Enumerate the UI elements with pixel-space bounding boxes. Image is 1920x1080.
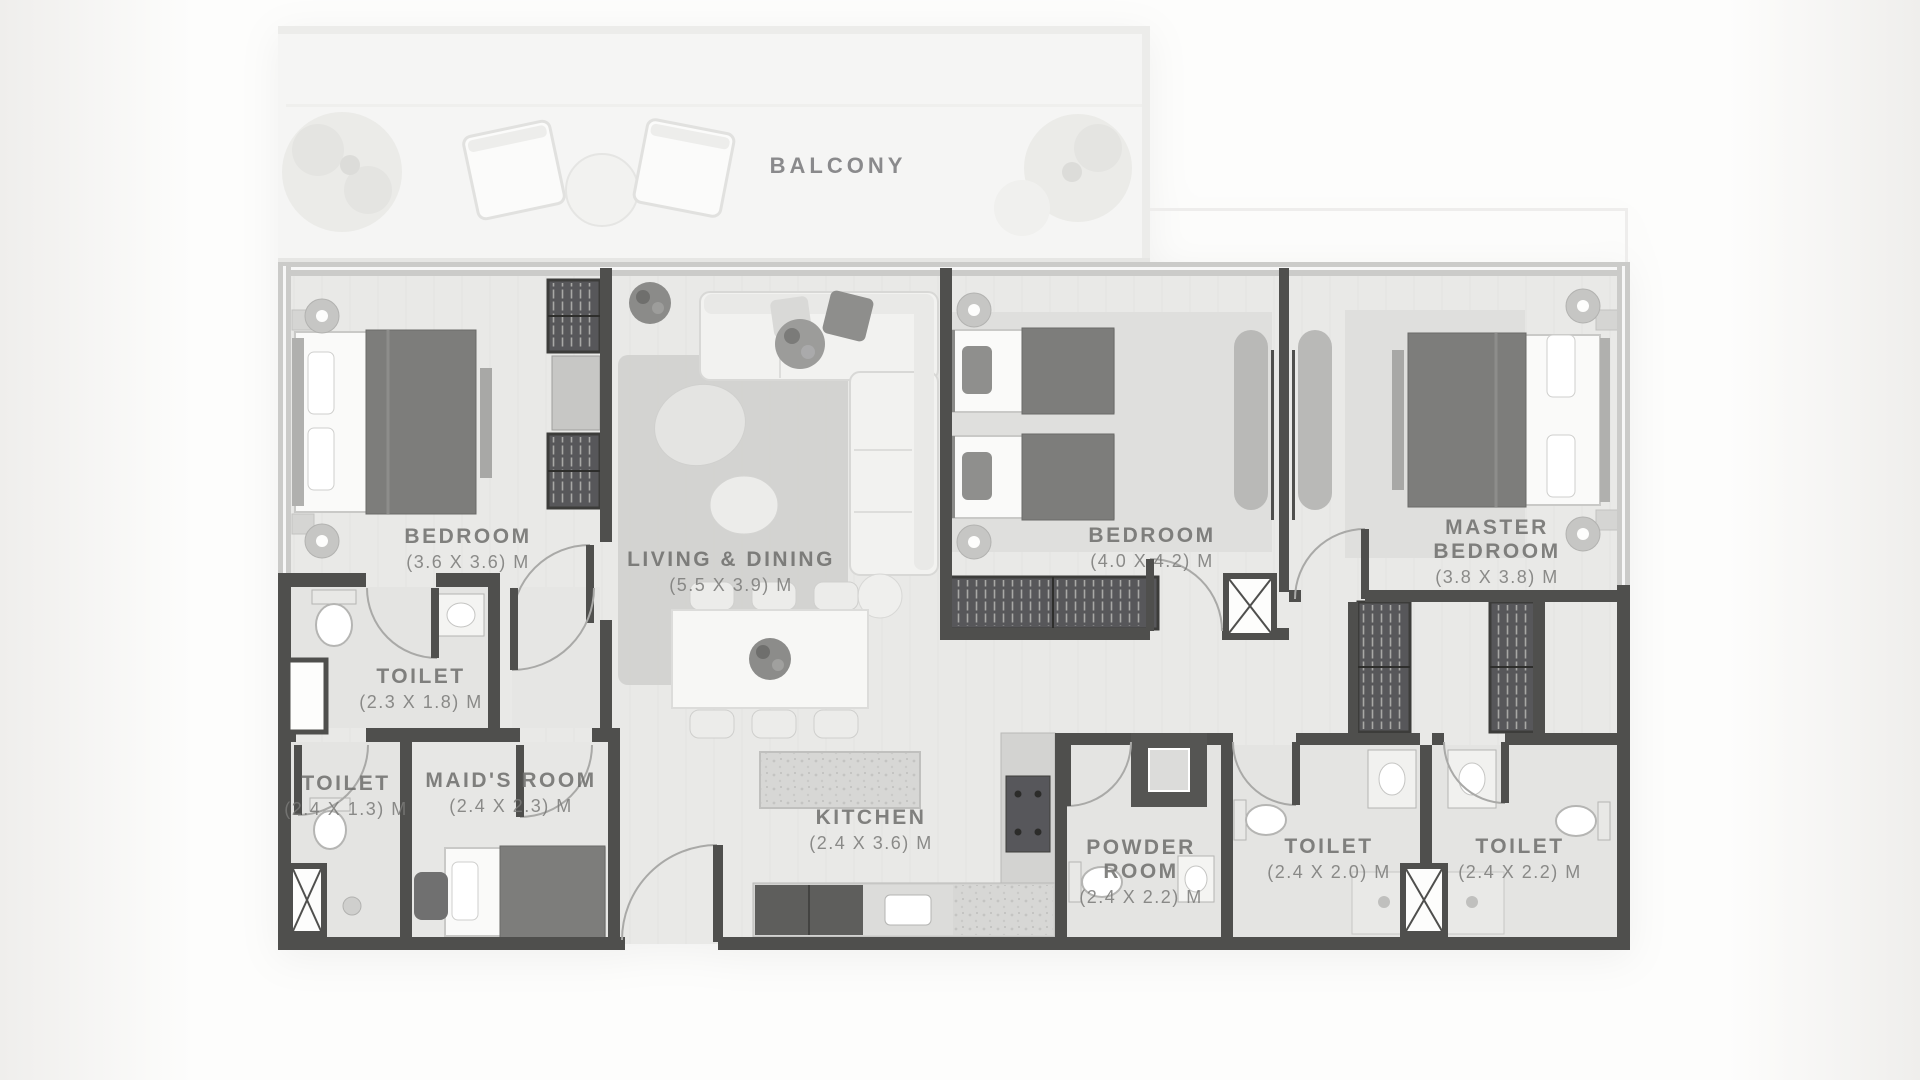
room-dims: (3.8 X 3.8) M	[1433, 567, 1560, 588]
wall-niche	[288, 660, 326, 732]
bed-bench	[1392, 350, 1404, 490]
kitchen-counter	[953, 885, 1053, 935]
terrace-line-right	[1625, 208, 1628, 264]
nightstand	[1596, 510, 1618, 530]
chair	[414, 872, 448, 920]
kitchen-sink	[885, 895, 931, 925]
wardrobe-long	[948, 577, 1158, 629]
washbasin	[1368, 750, 1416, 808]
ceiling-light-icon	[1566, 289, 1600, 323]
room-dims: (5.5 X 3.9) M	[627, 575, 835, 596]
pillow	[1547, 435, 1575, 497]
wardrobe	[1358, 602, 1410, 732]
dining-chair	[752, 710, 796, 738]
balcony-chair-2	[633, 118, 735, 217]
room-name: BALCONY	[770, 153, 907, 179]
room-label-maids-room: MAID'S ROOM (2.4 X 2.3) M	[425, 769, 596, 817]
plant-icon	[629, 282, 671, 324]
washbasin	[438, 594, 484, 636]
room-name: MASTER	[1433, 516, 1560, 540]
ceiling-light-icon	[1566, 517, 1600, 551]
room-dims: (3.6 X 3.6) M	[404, 552, 531, 573]
twin-bed	[947, 434, 1114, 520]
room-dims: (2.4 X 2.3) M	[425, 796, 596, 817]
bed-double	[292, 330, 476, 514]
room-label-bedroom-1: BEDROOM (3.6 X 3.6) M	[404, 525, 531, 573]
balcony-railing	[278, 26, 1150, 34]
pillow	[1547, 335, 1575, 397]
pillow	[962, 452, 992, 500]
service-duct	[1131, 733, 1207, 807]
dining-set	[672, 582, 868, 738]
room-label-powder-room: POWDER ROOM (2.4 X 2.2) M	[1079, 836, 1203, 908]
room-name: BEDROOM	[1088, 524, 1215, 548]
room-dims: (2.3 X 1.8) M	[359, 692, 483, 713]
wardrobe	[548, 434, 600, 508]
room-dims: (2.4 X 2.2) M	[1458, 862, 1582, 883]
terrace-line	[1150, 208, 1628, 211]
bed-double	[1408, 333, 1610, 507]
pillow	[452, 862, 478, 920]
room-name: TOILET	[359, 665, 483, 689]
coffee-table	[710, 476, 778, 534]
room-name: TOILET	[284, 772, 408, 796]
single-bed	[445, 846, 605, 938]
room-name: ROOM	[1079, 860, 1203, 884]
room-name: POWDER	[1079, 836, 1203, 860]
room-label-bedroom-2: BEDROOM (4.0 X 4.2) M	[1088, 524, 1215, 572]
room-name: LIVING & DINING	[627, 548, 835, 572]
shaft-box	[1403, 866, 1445, 934]
balcony-chair-1	[462, 120, 566, 220]
shower-drain	[343, 897, 361, 915]
room-name: MAID'S ROOM	[425, 769, 596, 793]
room-label-toilet-2: TOILET (2.4 X 1.3) M	[284, 772, 408, 820]
room-label-master-bedroom: MASTER BEDROOM (3.8 X 3.8) M	[1433, 516, 1560, 588]
nightstand	[1596, 310, 1618, 330]
ceiling-light-icon	[957, 293, 991, 327]
twin-bed	[947, 328, 1114, 414]
ceiling-light-icon	[957, 525, 991, 559]
table-plant-icon	[749, 638, 791, 680]
shower-drain	[1466, 896, 1478, 908]
kitchen-island	[760, 752, 920, 808]
room-dims: (2.4 X 2.0) M	[1267, 862, 1391, 883]
floor-plan-drawing	[0, 0, 1920, 1080]
room-name: BEDROOM	[404, 525, 531, 549]
room-label-toilet-3: TOILET (2.4 X 2.0) M	[1267, 835, 1391, 883]
ceiling-light-icon	[305, 524, 339, 558]
door-track	[1271, 350, 1274, 520]
shower-drain	[1378, 896, 1390, 908]
room-label-kitchen: KITCHEN (2.4 X 3.6) M	[809, 806, 933, 854]
dining-chair	[690, 710, 734, 738]
shaft-box	[1226, 576, 1274, 636]
room-dims: (2.4 X 2.2) M	[1079, 887, 1203, 908]
room-label-living-dining: LIVING & DINING (5.5 X 3.9) M	[627, 548, 835, 596]
sliding-door-panel	[1298, 330, 1332, 510]
wc-toilet	[312, 590, 356, 646]
room-name: BEDROOM	[1433, 540, 1560, 564]
wardrobe	[548, 280, 600, 352]
room-dims: (2.4 X 1.3) M	[284, 799, 408, 820]
balcony-edge-line	[286, 104, 1142, 107]
room-name: KITCHEN	[809, 806, 933, 830]
room-dims: (2.4 X 3.6) M	[809, 833, 933, 854]
plant-icon	[775, 319, 825, 369]
balcony-plant-left-icon	[282, 112, 402, 232]
sliding-door-panel	[1234, 330, 1268, 510]
room-name: TOILET	[1458, 835, 1582, 859]
room-label-balcony: BALCONY	[770, 153, 907, 179]
door-track	[1292, 350, 1295, 520]
dining-chair	[814, 710, 858, 738]
room-label-toilet-1: TOILET (2.3 X 1.8) M	[359, 665, 483, 713]
room-dims: (4.0 X 4.2) M	[1088, 551, 1215, 572]
balcony-right-edge	[1142, 30, 1150, 266]
stove	[1006, 776, 1050, 852]
room-name: TOILET	[1267, 835, 1391, 859]
room-label-toilet-4: TOILET (2.4 X 2.2) M	[1458, 835, 1582, 883]
floor-plan-page: BALCONY BEDROOM (3.6 X 3.6) M LIVING & D…	[0, 0, 1920, 1080]
bed-bench	[480, 368, 492, 478]
pillow	[962, 346, 992, 394]
ceiling-light-icon	[305, 299, 339, 333]
balcony-area	[278, 26, 1628, 266]
shaft-box	[290, 866, 324, 934]
dresser	[552, 356, 600, 430]
balcony-table	[566, 154, 638, 226]
